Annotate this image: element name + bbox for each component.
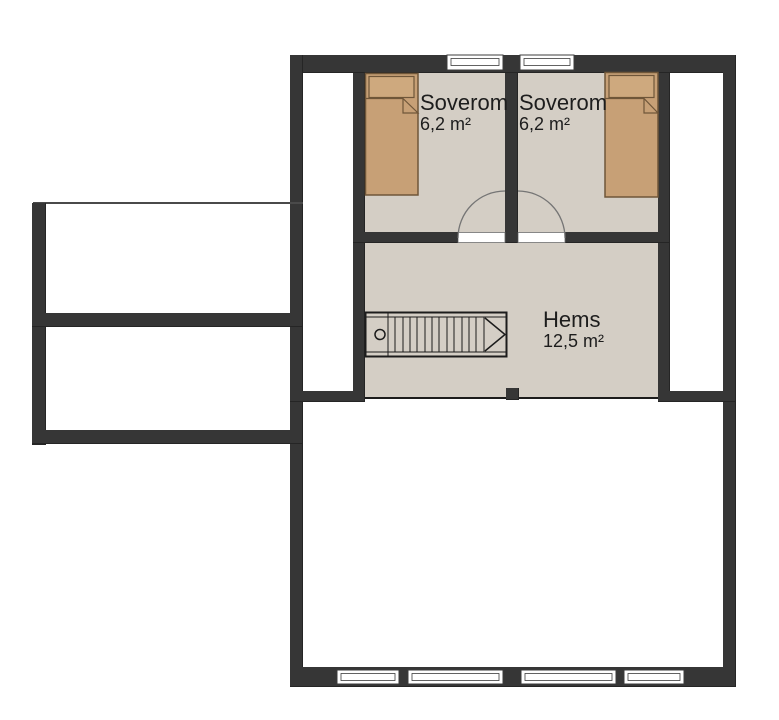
annex-wall-middle: [32, 313, 303, 327]
exterior-wall-left: [290, 55, 303, 687]
room-label-hems: Hems 12,5 m²: [543, 308, 604, 351]
floor-plan: Soverom 6,2 m² Soverom 6,2 m² Hems 12,5 …: [0, 0, 779, 720]
bedroom-hems-wall-right: [565, 232, 670, 243]
hems-stub-wall-right: [658, 391, 736, 402]
room-name: Soverom: [420, 91, 508, 114]
bedroom-hems-wall-left: [353, 232, 458, 243]
annex-top-edge-line: [33, 202, 303, 204]
room-area: 12,5 m²: [543, 332, 604, 351]
hems-stub-wall-left: [290, 391, 365, 402]
room-name: Hems: [543, 308, 604, 331]
annex-wall-bottom: [32, 430, 303, 444]
exterior-wall-bottom: [290, 667, 736, 687]
exterior-wall-top: [290, 55, 736, 73]
hems-floor: [365, 243, 658, 399]
room-area: 6,2 m²: [420, 115, 508, 134]
bedroom-hems-wall-center: [505, 232, 518, 243]
room-label-soverom-left: Soverom 6,2 m²: [420, 91, 508, 134]
hems-post: [506, 388, 519, 400]
exterior-wall-right: [723, 55, 736, 687]
room-label-soverom-right: Soverom 6,2 m²: [519, 91, 607, 134]
room-name: Soverom: [519, 91, 607, 114]
room-area: 6,2 m²: [519, 115, 607, 134]
